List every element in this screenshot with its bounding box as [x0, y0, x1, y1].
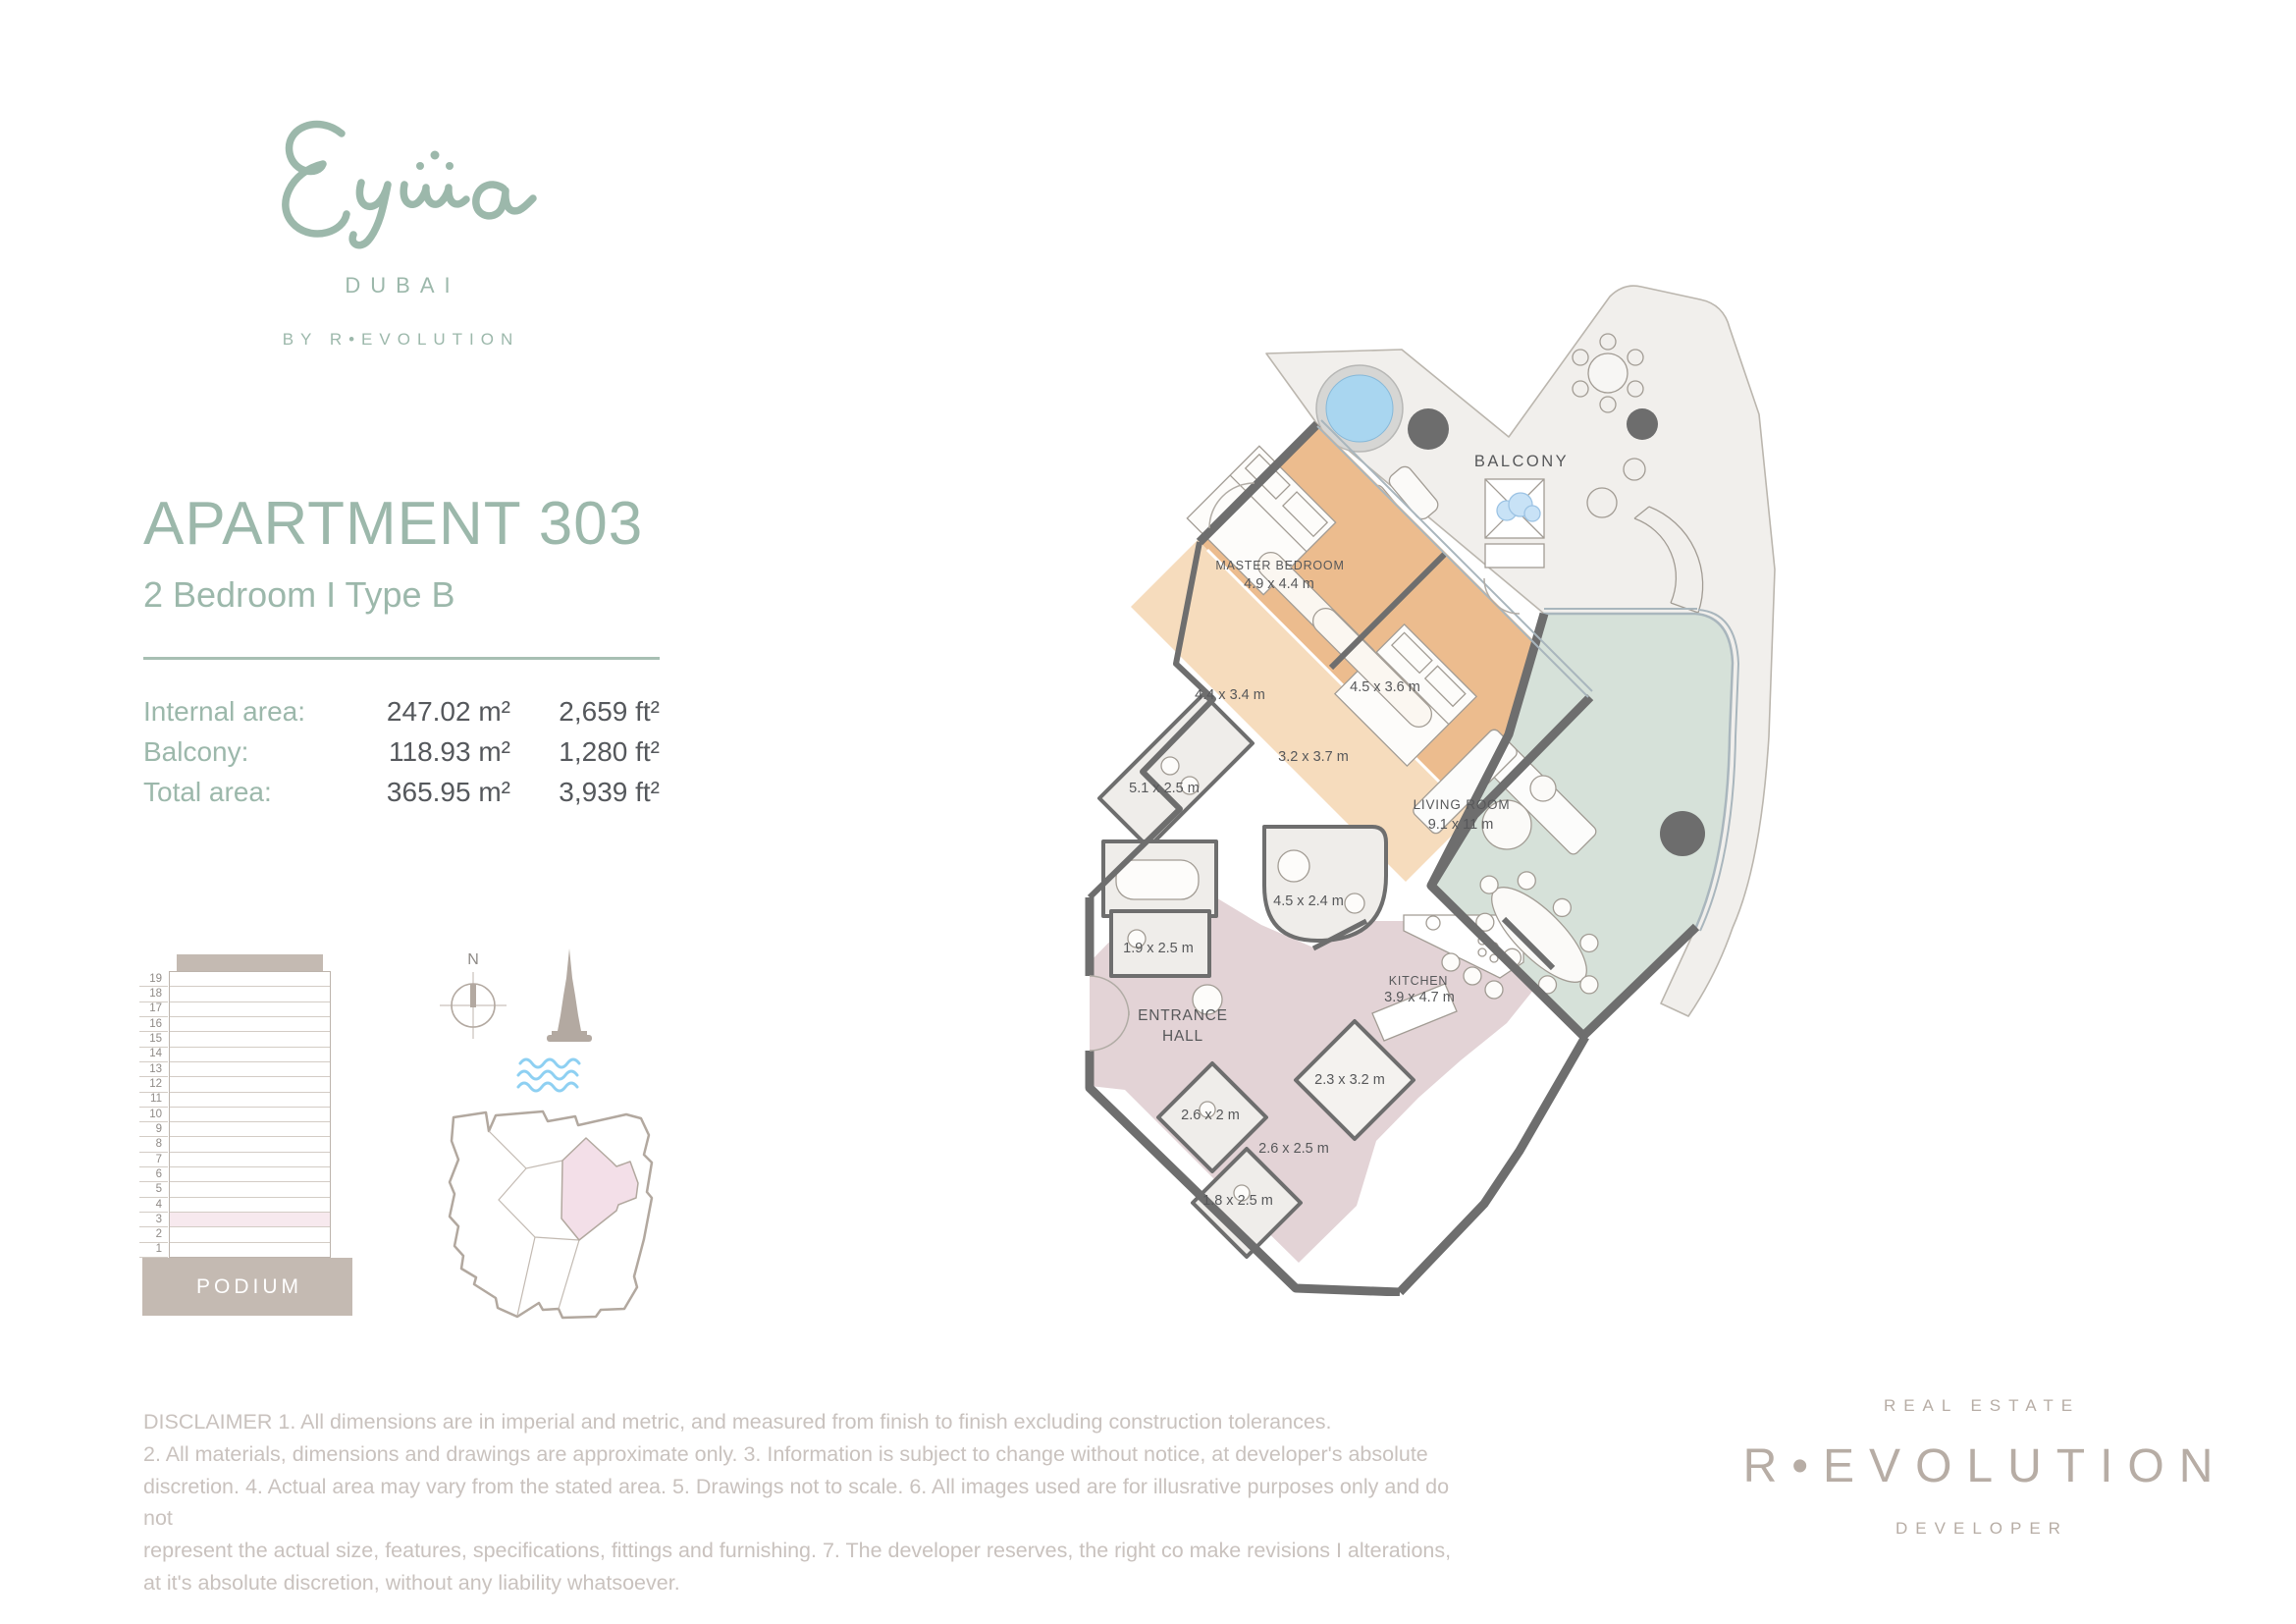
key-plan — [442, 1108, 672, 1328]
area-label: Total area: — [143, 777, 340, 808]
label-master-name: MASTER BEDROOM — [1215, 559, 1344, 572]
brand-byline: BY R•EVOLUTION — [211, 330, 584, 350]
logo-letter-y — [352, 183, 388, 245]
floor-row-1: 1 — [170, 1243, 330, 1257]
label-closet: 1.9 x 2.5 m — [1123, 941, 1194, 956]
compass-icon: N — [430, 945, 518, 1053]
label-guest-bath: 1.8 x 2.5 m — [1202, 1193, 1273, 1209]
disclaimer-line: discretion. 4. Actual area may vary from… — [143, 1471, 1459, 1536]
label-hall-2: HALL — [1162, 1028, 1203, 1045]
floor-number: 3 — [134, 1215, 162, 1226]
brochure-page: DUBAI BY R•EVOLUTION APARTMENT 303 2 Bed… — [0, 0, 2296, 1624]
label-master-bath: 5.1 x 2.5 m — [1129, 781, 1200, 796]
developer-tagline-bottom: DEVELOPER — [1723, 1519, 2233, 1539]
floor-row-8: 8 — [170, 1137, 330, 1152]
floor-number: 5 — [134, 1184, 162, 1196]
floor-row-11: 11 — [170, 1093, 330, 1108]
podium-block: PODIUM — [142, 1258, 352, 1316]
developer-tagline-top: REAL ESTATE — [1723, 1396, 2233, 1416]
floor-row-6: 6 — [170, 1167, 330, 1182]
floor-row-7: 7 — [170, 1153, 330, 1167]
building-elevation: 19181716151413121110987654321 — [169, 971, 331, 1258]
floor-row-13: 13 — [170, 1062, 330, 1077]
floor-number: 6 — [134, 1169, 162, 1181]
floor-row-4: 4 — [170, 1198, 330, 1213]
floor-row-15: 15 — [170, 1032, 330, 1047]
floor-number: 2 — [134, 1229, 162, 1241]
eywa-logo — [257, 110, 542, 257]
floor-number: 12 — [134, 1079, 162, 1091]
floor-number: 8 — [134, 1139, 162, 1151]
label-hall-1: ENTRANCE — [1138, 1007, 1228, 1024]
floor-row-12: 12 — [170, 1077, 330, 1092]
disclaimer-line: DISCLAIMER 1. All dimensions are in impe… — [143, 1406, 1459, 1438]
floor-row-16: 16 — [170, 1017, 330, 1032]
disclaimer-line: at it's absolute discretion, without any… — [143, 1567, 1459, 1599]
label-bedroom2: 4.5 x 3.6 m — [1350, 679, 1420, 695]
logo-letter-e — [286, 125, 347, 234]
area-label: Internal area: — [143, 696, 340, 728]
logo-w-dots — [416, 151, 454, 171]
floor-number: 1 — [134, 1244, 162, 1256]
divider-rule — [143, 657, 660, 660]
floor-row-3: 3 — [170, 1213, 330, 1227]
building-roof — [177, 954, 323, 971]
floor-row-18: 18 — [170, 987, 330, 1001]
developer-logo-block: REAL ESTATE R•EVOLUTION DEVELOPER — [1723, 1396, 2233, 1539]
floor-number: 13 — [134, 1064, 162, 1076]
label-kitchen-dims: 3.9 x 4.7 m — [1384, 990, 1455, 1005]
key-plan-outline — [450, 1111, 652, 1318]
column — [1627, 408, 1658, 440]
disclaimer-line: 2. All materials, dimensions and drawing… — [143, 1438, 1459, 1471]
page-title: APARTMENT 303 — [143, 489, 643, 559]
floor-number: 9 — [134, 1124, 162, 1136]
sea-waves-icon — [514, 1056, 593, 1100]
disclaimer-line: represent the actual size, features, spe… — [143, 1535, 1459, 1567]
floor-number: 4 — [134, 1200, 162, 1212]
area-imperial: 2,659 ft² — [510, 696, 660, 728]
logo-letter-w — [403, 185, 466, 204]
floor-number: 14 — [134, 1049, 162, 1060]
area-metric: 247.02 m² — [340, 696, 510, 728]
burj-khalifa-icon — [530, 945, 609, 1053]
floor-row-2: 2 — [170, 1227, 330, 1242]
label-balcony: BALCONY — [1474, 453, 1569, 470]
floor-number: 10 — [134, 1110, 162, 1121]
area-metric: 365.95 m² — [340, 777, 510, 808]
label-dressing1: 4.4 x 3.4 m — [1195, 687, 1265, 703]
floor-number: 19 — [134, 974, 162, 986]
label-utility: 2.3 x 3.2 m — [1314, 1072, 1385, 1088]
area-row-internal: Internal area: 247.02 m² 2,659 ft² — [143, 691, 664, 731]
developer-name: R•EVOLUTION — [1723, 1439, 2233, 1493]
label-living-dims: 9.1 x 11 m — [1428, 817, 1494, 833]
floor-row-17: 17 — [170, 1002, 330, 1017]
label-dressing2: 3.2 x 3.7 m — [1278, 749, 1349, 765]
label-bath2: 4.5 x 2.4 m — [1273, 893, 1344, 909]
floor-number: 17 — [134, 1003, 162, 1015]
floor-number: 7 — [134, 1155, 162, 1166]
label-master-dims: 4.9 x 4.4 m — [1244, 576, 1314, 592]
label-living-name: LIVING ROOM — [1414, 797, 1511, 812]
logo-letter-a — [476, 185, 533, 216]
column — [1408, 408, 1449, 450]
area-row-balcony: Balcony: 118.93 m² 1,280 ft² — [143, 731, 664, 772]
label-kitchen-name: KITCHEN — [1389, 974, 1448, 988]
label-powder: 2.6 x 2 m — [1181, 1108, 1240, 1123]
area-metric: 118.93 m² — [340, 736, 510, 768]
compass-north-label: N — [467, 951, 479, 968]
page-subtitle: 2 Bedroom I Type B — [143, 574, 455, 616]
floor-row-5: 5 — [170, 1182, 330, 1197]
area-imperial: 3,939 ft² — [510, 777, 660, 808]
area-row-total: Total area: 365.95 m² 3,939 ft² — [143, 772, 664, 812]
brand-city: DUBAI — [250, 273, 545, 298]
column — [1660, 811, 1705, 856]
floor-number: 18 — [134, 989, 162, 1001]
area-table: Internal area: 247.02 m² 2,659 ft² Balco… — [143, 691, 664, 812]
disclaimer: DISCLAIMER 1. All dimensions are in impe… — [143, 1406, 1459, 1599]
floor-row-14: 14 — [170, 1048, 330, 1062]
area-imperial: 1,280 ft² — [510, 736, 660, 768]
label-store: 2.6 x 2.5 m — [1258, 1141, 1329, 1157]
floor-number: 15 — [134, 1034, 162, 1046]
floor-number: 11 — [134, 1094, 162, 1106]
area-label: Balcony: — [143, 736, 340, 768]
floor-row-10: 10 — [170, 1108, 330, 1122]
floor-number: 16 — [134, 1019, 162, 1031]
floor-row-19: 19 — [170, 972, 330, 987]
floor-row-9: 9 — [170, 1122, 330, 1137]
floor-plan: BALCONY MASTER BEDROOM 4.9 x 4.4 m 4.4 x… — [1060, 275, 1885, 1296]
